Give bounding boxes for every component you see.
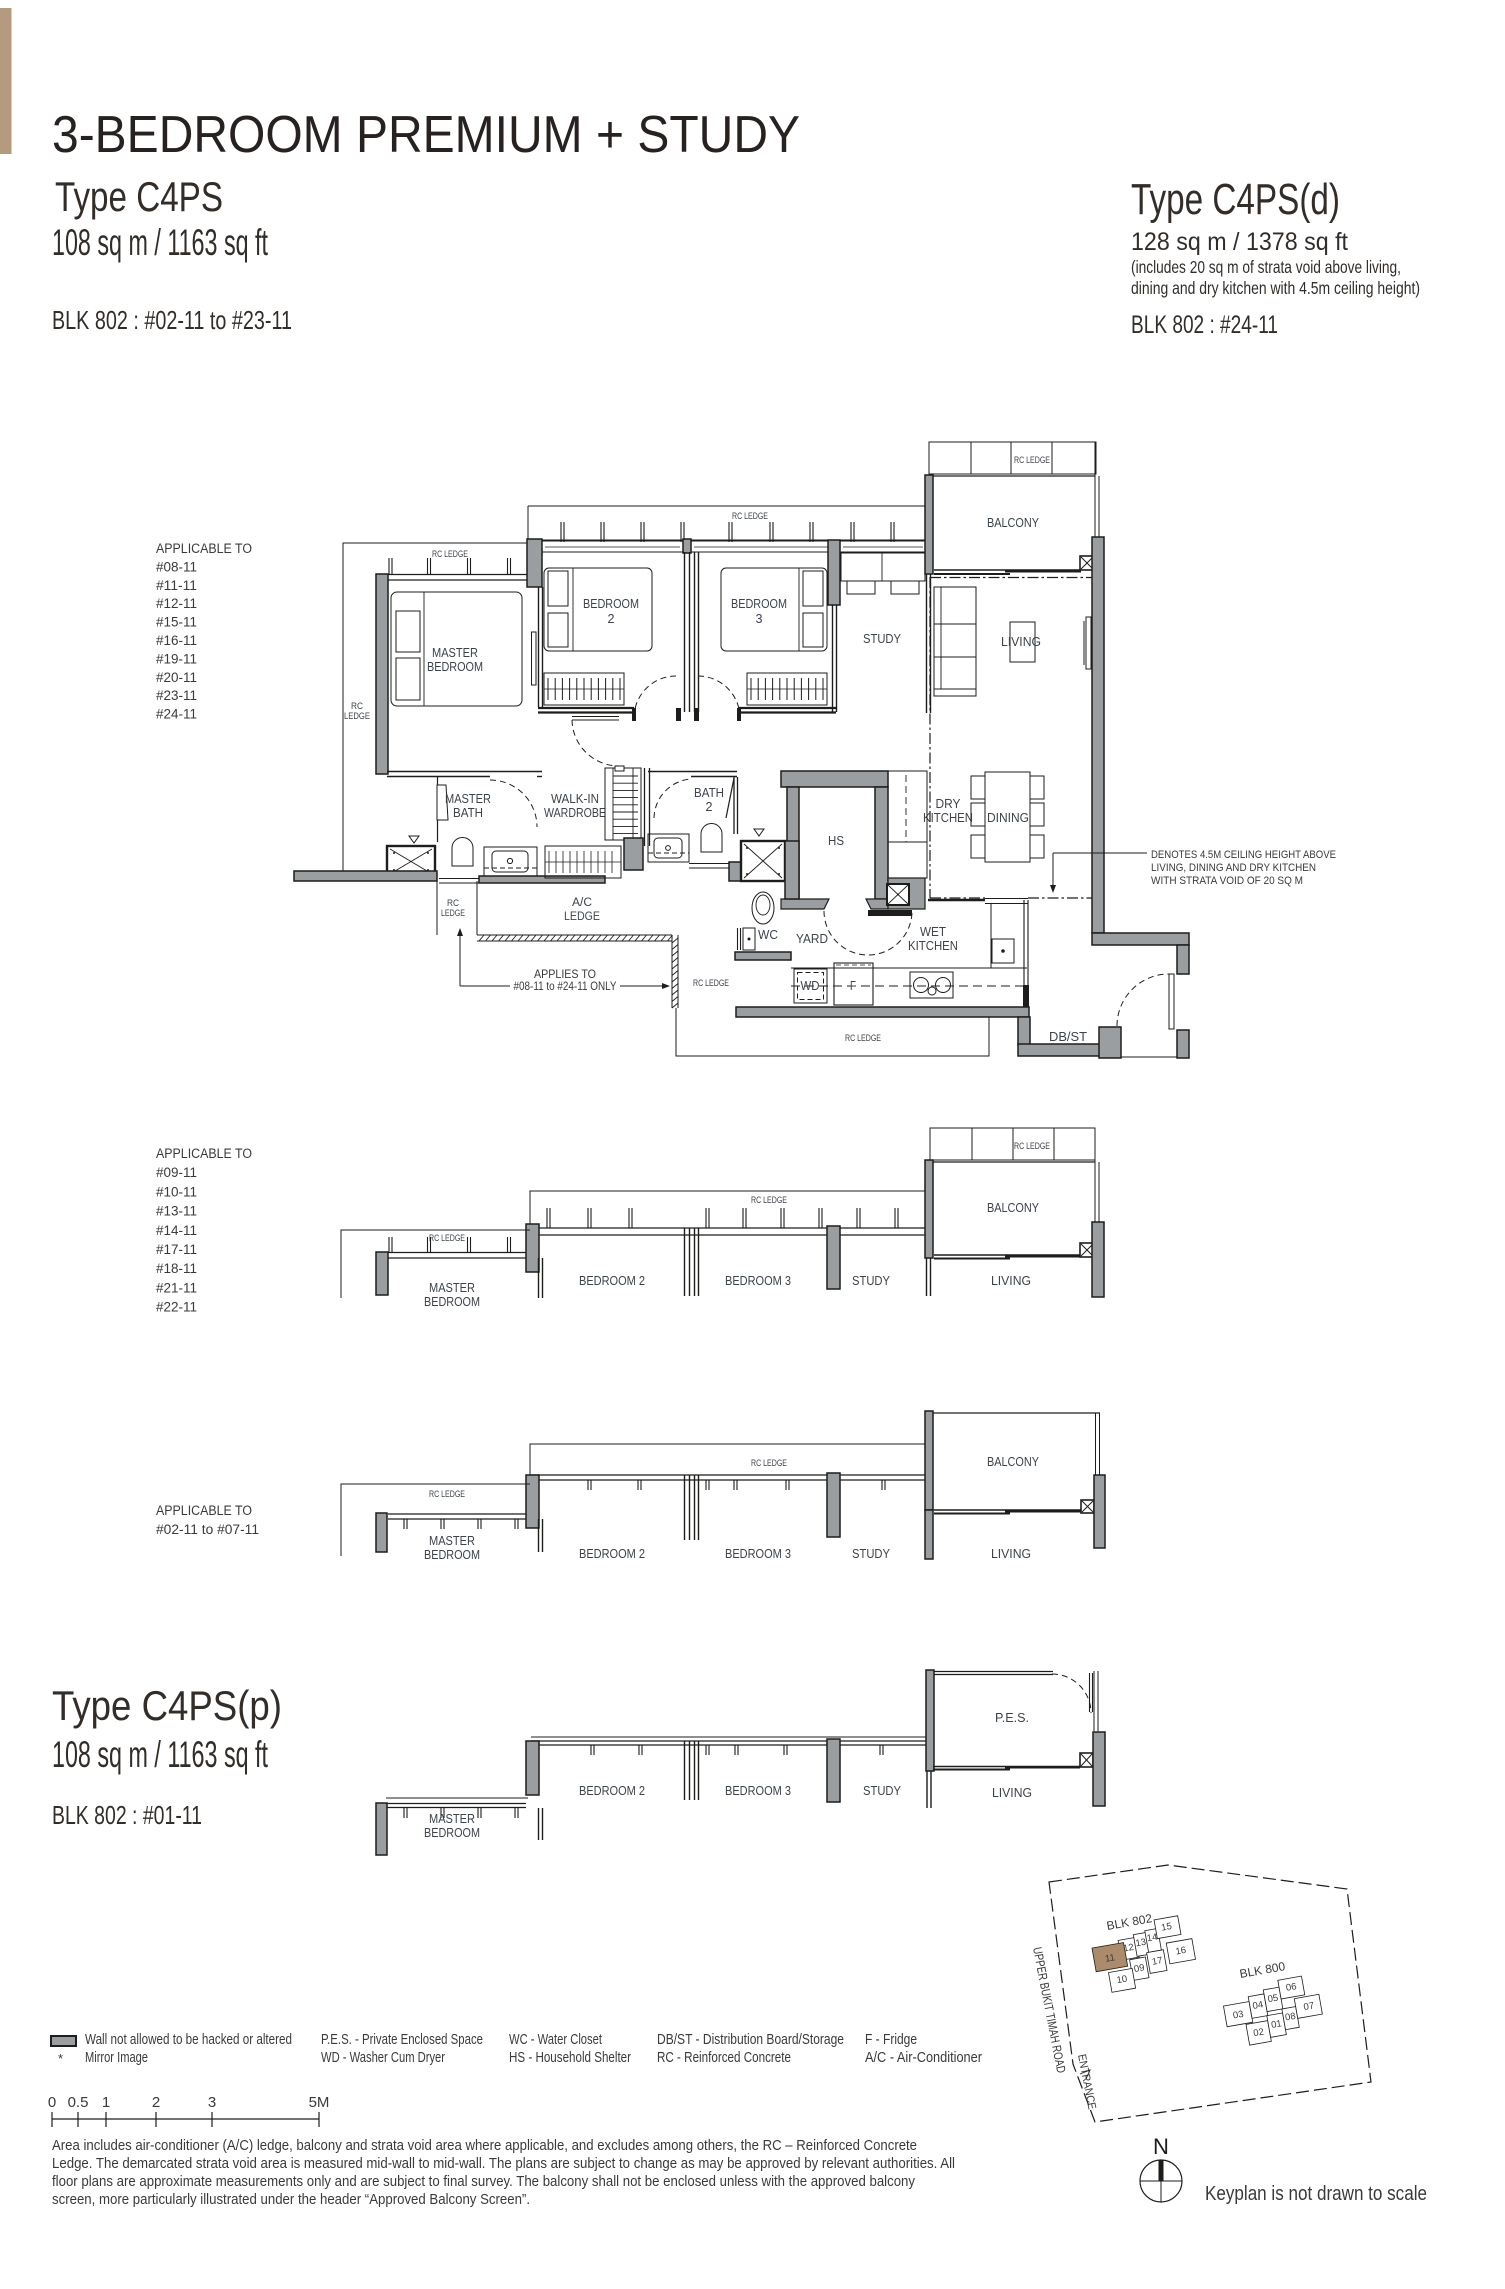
- svg-text:BATH: BATH: [694, 786, 724, 800]
- svg-text:1: 1: [102, 2094, 110, 2111]
- svg-text:BLK 802: BLK 802: [1105, 1911, 1153, 1933]
- svg-text:LIVING: LIVING: [992, 1786, 1032, 1800]
- svg-text:#22-11: #22-11: [156, 1300, 197, 1315]
- svg-text:09: 09: [1133, 1962, 1145, 1975]
- svg-text:KITCHEN: KITCHEN: [923, 811, 973, 825]
- svg-text:108 sq m / 1163 sq ft: 108 sq m / 1163 sq ft: [52, 222, 268, 263]
- svg-text:Mirror Image: Mirror Image: [85, 2050, 148, 2066]
- svg-text:17: 17: [1151, 1955, 1163, 1968]
- svg-text:11: 11: [1104, 1952, 1116, 1965]
- svg-text:0: 0: [48, 2094, 56, 2111]
- svg-text:#24-11: #24-11: [156, 707, 197, 722]
- svg-text:LIVING: LIVING: [1001, 635, 1041, 649]
- svg-text:Type C4PS(d): Type C4PS(d): [1131, 175, 1340, 224]
- svg-text:0.5: 0.5: [68, 2094, 89, 2111]
- svg-text:#15-11: #15-11: [156, 615, 197, 630]
- svg-text:HS: HS: [828, 834, 844, 848]
- svg-text:15: 15: [1160, 1921, 1172, 1934]
- svg-text:P.E.S.: P.E.S.: [995, 1711, 1029, 1725]
- svg-text:APPLIES TO: APPLIES TO: [534, 969, 596, 981]
- svg-text:WARDROBE: WARDROBE: [544, 806, 606, 820]
- svg-text:Type C4PS(p): Type C4PS(p): [52, 1682, 282, 1729]
- svg-text:BALCONY: BALCONY: [987, 1201, 1040, 1215]
- svg-text:STUDY: STUDY: [863, 1784, 902, 1798]
- svg-text:#23-11: #23-11: [156, 688, 197, 703]
- svg-text:05: 05: [1267, 1993, 1279, 2006]
- svg-text:RC LEDGE: RC LEDGE: [1014, 1141, 1050, 1151]
- svg-text:RC LEDGE: RC LEDGE: [693, 978, 729, 988]
- svg-text:2: 2: [706, 800, 713, 814]
- svg-text:MASTER: MASTER: [429, 1812, 475, 1826]
- svg-text:04: 04: [1252, 1999, 1264, 2012]
- svg-text:*: *: [58, 2051, 63, 2066]
- svg-text:BALCONY: BALCONY: [987, 516, 1040, 530]
- svg-text:WD - Washer Cum Dryer: WD - Washer Cum Dryer: [321, 2050, 445, 2066]
- svg-text:128 sq m / 1378 sq ft: 128 sq m / 1378 sq ft: [1131, 228, 1348, 256]
- svg-text:#20-11: #20-11: [156, 670, 197, 685]
- svg-text:KITCHEN: KITCHEN: [908, 939, 958, 953]
- svg-text:APPLICABLE TO: APPLICABLE TO: [156, 1146, 252, 1161]
- svg-text:APPLICABLE TO: APPLICABLE TO: [156, 541, 252, 556]
- svg-text:#02-11 to #07-11: #02-11 to #07-11: [156, 1522, 259, 1537]
- svg-text:BEDROOM: BEDROOM: [427, 660, 483, 674]
- svg-text:WET: WET: [920, 925, 946, 939]
- svg-text:2: 2: [608, 612, 615, 626]
- svg-text:108 sq m / 1163 sq ft: 108 sq m / 1163 sq ft: [52, 1734, 268, 1775]
- svg-text:Ledge. The demarcated strata v: Ledge. The demarcated strata void area i…: [52, 2155, 955, 2172]
- svg-text:08: 08: [1284, 2011, 1296, 2024]
- svg-text:#18-11: #18-11: [156, 1261, 197, 1276]
- svg-text:MASTER: MASTER: [429, 1534, 475, 1548]
- svg-text:RC: RC: [447, 898, 459, 908]
- svg-text:A/C: A/C: [572, 897, 592, 909]
- svg-text:Area includes air-conditioner: Area includes air-conditioner (A/C) ledg…: [52, 2137, 917, 2154]
- svg-text:WALK-IN: WALK-IN: [551, 792, 599, 806]
- svg-text:06: 06: [1285, 1981, 1297, 1994]
- svg-text:#10-11: #10-11: [156, 1184, 197, 1199]
- svg-text:3: 3: [208, 2094, 216, 2111]
- svg-text:BEDROOM: BEDROOM: [424, 1295, 480, 1309]
- svg-text:BEDROOM: BEDROOM: [583, 597, 639, 611]
- svg-text:2: 2: [152, 2094, 160, 2111]
- svg-text:LIVING: LIVING: [991, 1547, 1031, 1561]
- svg-text:#12-11: #12-11: [156, 596, 197, 611]
- svg-text:YARD: YARD: [796, 932, 828, 946]
- svg-text:LIVING, DINING AND DRY KITCHEN: LIVING, DINING AND DRY KITCHEN: [1151, 862, 1316, 874]
- svg-text:STUDY: STUDY: [863, 632, 902, 646]
- svg-text:LEDGE: LEDGE: [564, 911, 600, 923]
- svg-text:10: 10: [1116, 1974, 1128, 1987]
- svg-text:BLK 800: BLK 800: [1238, 1959, 1286, 1981]
- svg-text:16: 16: [1175, 1945, 1187, 1958]
- svg-text:Wall not allowed to be hacked: Wall not allowed to be hacked or altered: [85, 2032, 292, 2048]
- svg-text:#16-11: #16-11: [156, 633, 197, 648]
- svg-text:BEDROOM: BEDROOM: [731, 597, 787, 611]
- svg-text:BEDROOM 2: BEDROOM 2: [579, 1784, 645, 1798]
- svg-text:BEDROOM 3: BEDROOM 3: [725, 1784, 791, 1798]
- svg-text:RC LEDGE: RC LEDGE: [845, 1033, 881, 1043]
- svg-text:LEDGE: LEDGE: [344, 711, 370, 721]
- svg-text:13: 13: [1135, 1937, 1147, 1950]
- svg-text:03: 03: [1232, 2009, 1244, 2022]
- svg-text:MASTER: MASTER: [445, 792, 491, 806]
- svg-text:BLK 802 : #01-11: BLK 802 : #01-11: [52, 1800, 202, 1830]
- svg-text:screen, more particularly illu: screen, more particularly illustrated un…: [52, 2191, 530, 2208]
- svg-text:#21-11: #21-11: [156, 1280, 197, 1295]
- svg-text:STUDY: STUDY: [852, 1274, 891, 1288]
- svg-text:BLK 802 : #24-11: BLK 802 : #24-11: [1131, 311, 1278, 339]
- svg-text:RC: RC: [351, 701, 363, 711]
- svg-text:DB/ST: DB/ST: [1049, 1030, 1087, 1044]
- svg-text:12: 12: [1122, 1942, 1134, 1955]
- svg-text:floor plans are approximate me: floor plans are approximate measurements…: [52, 2173, 915, 2190]
- svg-text:DENOTES 4.5M CEILING HEIGHT AB: DENOTES 4.5M CEILING HEIGHT ABOVE: [1151, 849, 1336, 861]
- svg-text:APPLICABLE TO: APPLICABLE TO: [156, 1503, 252, 1518]
- svg-text:Keyplan is not drawn to scale: Keyplan is not drawn to scale: [1205, 2183, 1427, 2205]
- svg-text:A/C - Air-Conditioner: A/C - Air-Conditioner: [865, 2050, 982, 2066]
- svg-text:#08-11 to #24-11 ONLY: #08-11 to #24-11 ONLY: [514, 981, 617, 993]
- svg-text:ENTRANCE: ENTRANCE: [1075, 2053, 1098, 2111]
- svg-text:#14-11: #14-11: [156, 1223, 197, 1238]
- svg-text:#09-11: #09-11: [156, 1165, 197, 1180]
- svg-text:3-BEDROOM PREMIUM + STUDY: 3-BEDROOM PREMIUM + STUDY: [52, 106, 800, 164]
- svg-text:MASTER: MASTER: [429, 1281, 475, 1295]
- svg-text:07: 07: [1303, 2000, 1315, 2013]
- svg-text:02: 02: [1253, 2027, 1265, 2040]
- svg-text:BLK 802 : #02-11 to #23-11: BLK 802 : #02-11 to #23-11: [52, 305, 292, 335]
- svg-text:BEDROOM: BEDROOM: [424, 1826, 480, 1840]
- svg-text:#08-11: #08-11: [156, 559, 197, 574]
- svg-text:HS - Household Shelter: HS - Household Shelter: [509, 2050, 631, 2066]
- svg-text:BEDROOM 3: BEDROOM 3: [725, 1547, 791, 1561]
- svg-text:RC LEDGE: RC LEDGE: [1014, 455, 1050, 465]
- svg-text:RC LEDGE: RC LEDGE: [732, 511, 768, 521]
- svg-text:(includes 20 sq m of strata vo: (includes 20 sq m of strata void above l…: [1131, 257, 1401, 277]
- svg-text:3: 3: [756, 612, 763, 626]
- svg-text:MASTER: MASTER: [432, 646, 478, 660]
- svg-text:F - Fridge: F - Fridge: [865, 2032, 917, 2048]
- svg-text:BALCONY: BALCONY: [987, 1455, 1040, 1469]
- svg-text:dining and dry kitchen with 4.: dining and dry kitchen with 4.5m ceiling…: [1131, 278, 1420, 298]
- svg-text:RC - Reinforced Concrete: RC - Reinforced Concrete: [657, 2050, 791, 2066]
- svg-text:RC LEDGE: RC LEDGE: [751, 1195, 787, 1205]
- svg-text:Type C4PS: Type C4PS: [55, 173, 223, 220]
- svg-text:WD: WD: [801, 979, 820, 993]
- svg-text:WITH STRATA VOID OF 20 SQ M: WITH STRATA VOID OF 20 SQ M: [1151, 875, 1303, 887]
- svg-text:RC LEDGE: RC LEDGE: [429, 1233, 465, 1243]
- svg-text:DINING: DINING: [987, 811, 1029, 825]
- svg-text:RC LEDGE: RC LEDGE: [432, 549, 468, 559]
- svg-text:LIVING: LIVING: [991, 1274, 1031, 1288]
- svg-text:5M: 5M: [309, 2094, 330, 2111]
- svg-text:BEDROOM 2: BEDROOM 2: [579, 1274, 645, 1288]
- svg-text:14: 14: [1146, 1932, 1158, 1945]
- svg-text:WC - Water Closet: WC - Water Closet: [509, 2032, 602, 2048]
- svg-text:DB/ST - Distribution Board/Sto: DB/ST - Distribution Board/Storage: [657, 2032, 844, 2048]
- svg-text:RC LEDGE: RC LEDGE: [751, 1458, 787, 1468]
- svg-text:LEDGE: LEDGE: [441, 908, 465, 918]
- svg-text:RC LEDGE: RC LEDGE: [429, 1489, 465, 1499]
- svg-text:BEDROOM: BEDROOM: [424, 1548, 480, 1562]
- svg-text:BEDROOM 2: BEDROOM 2: [579, 1547, 645, 1561]
- svg-text:#19-11: #19-11: [156, 651, 197, 666]
- svg-text:P.E.S. - Private Enclosed Spac: P.E.S. - Private Enclosed Space: [321, 2032, 483, 2048]
- svg-text:STUDY: STUDY: [852, 1547, 891, 1561]
- svg-text:N: N: [1153, 2134, 1169, 2159]
- svg-text:BATH: BATH: [453, 806, 483, 820]
- svg-text:DRY: DRY: [936, 797, 962, 811]
- svg-text:#17-11: #17-11: [156, 1242, 197, 1257]
- svg-text:F: F: [850, 979, 856, 993]
- svg-text:WC: WC: [758, 928, 778, 942]
- svg-text:#13-11: #13-11: [156, 1204, 197, 1219]
- svg-text:#11-11: #11-11: [156, 578, 197, 593]
- svg-text:BEDROOM 3: BEDROOM 3: [725, 1274, 791, 1288]
- svg-text:UPPER BUKIT TIMAH ROAD: UPPER BUKIT TIMAH ROAD: [1030, 1946, 1068, 2074]
- svg-text:01: 01: [1270, 2018, 1282, 2031]
